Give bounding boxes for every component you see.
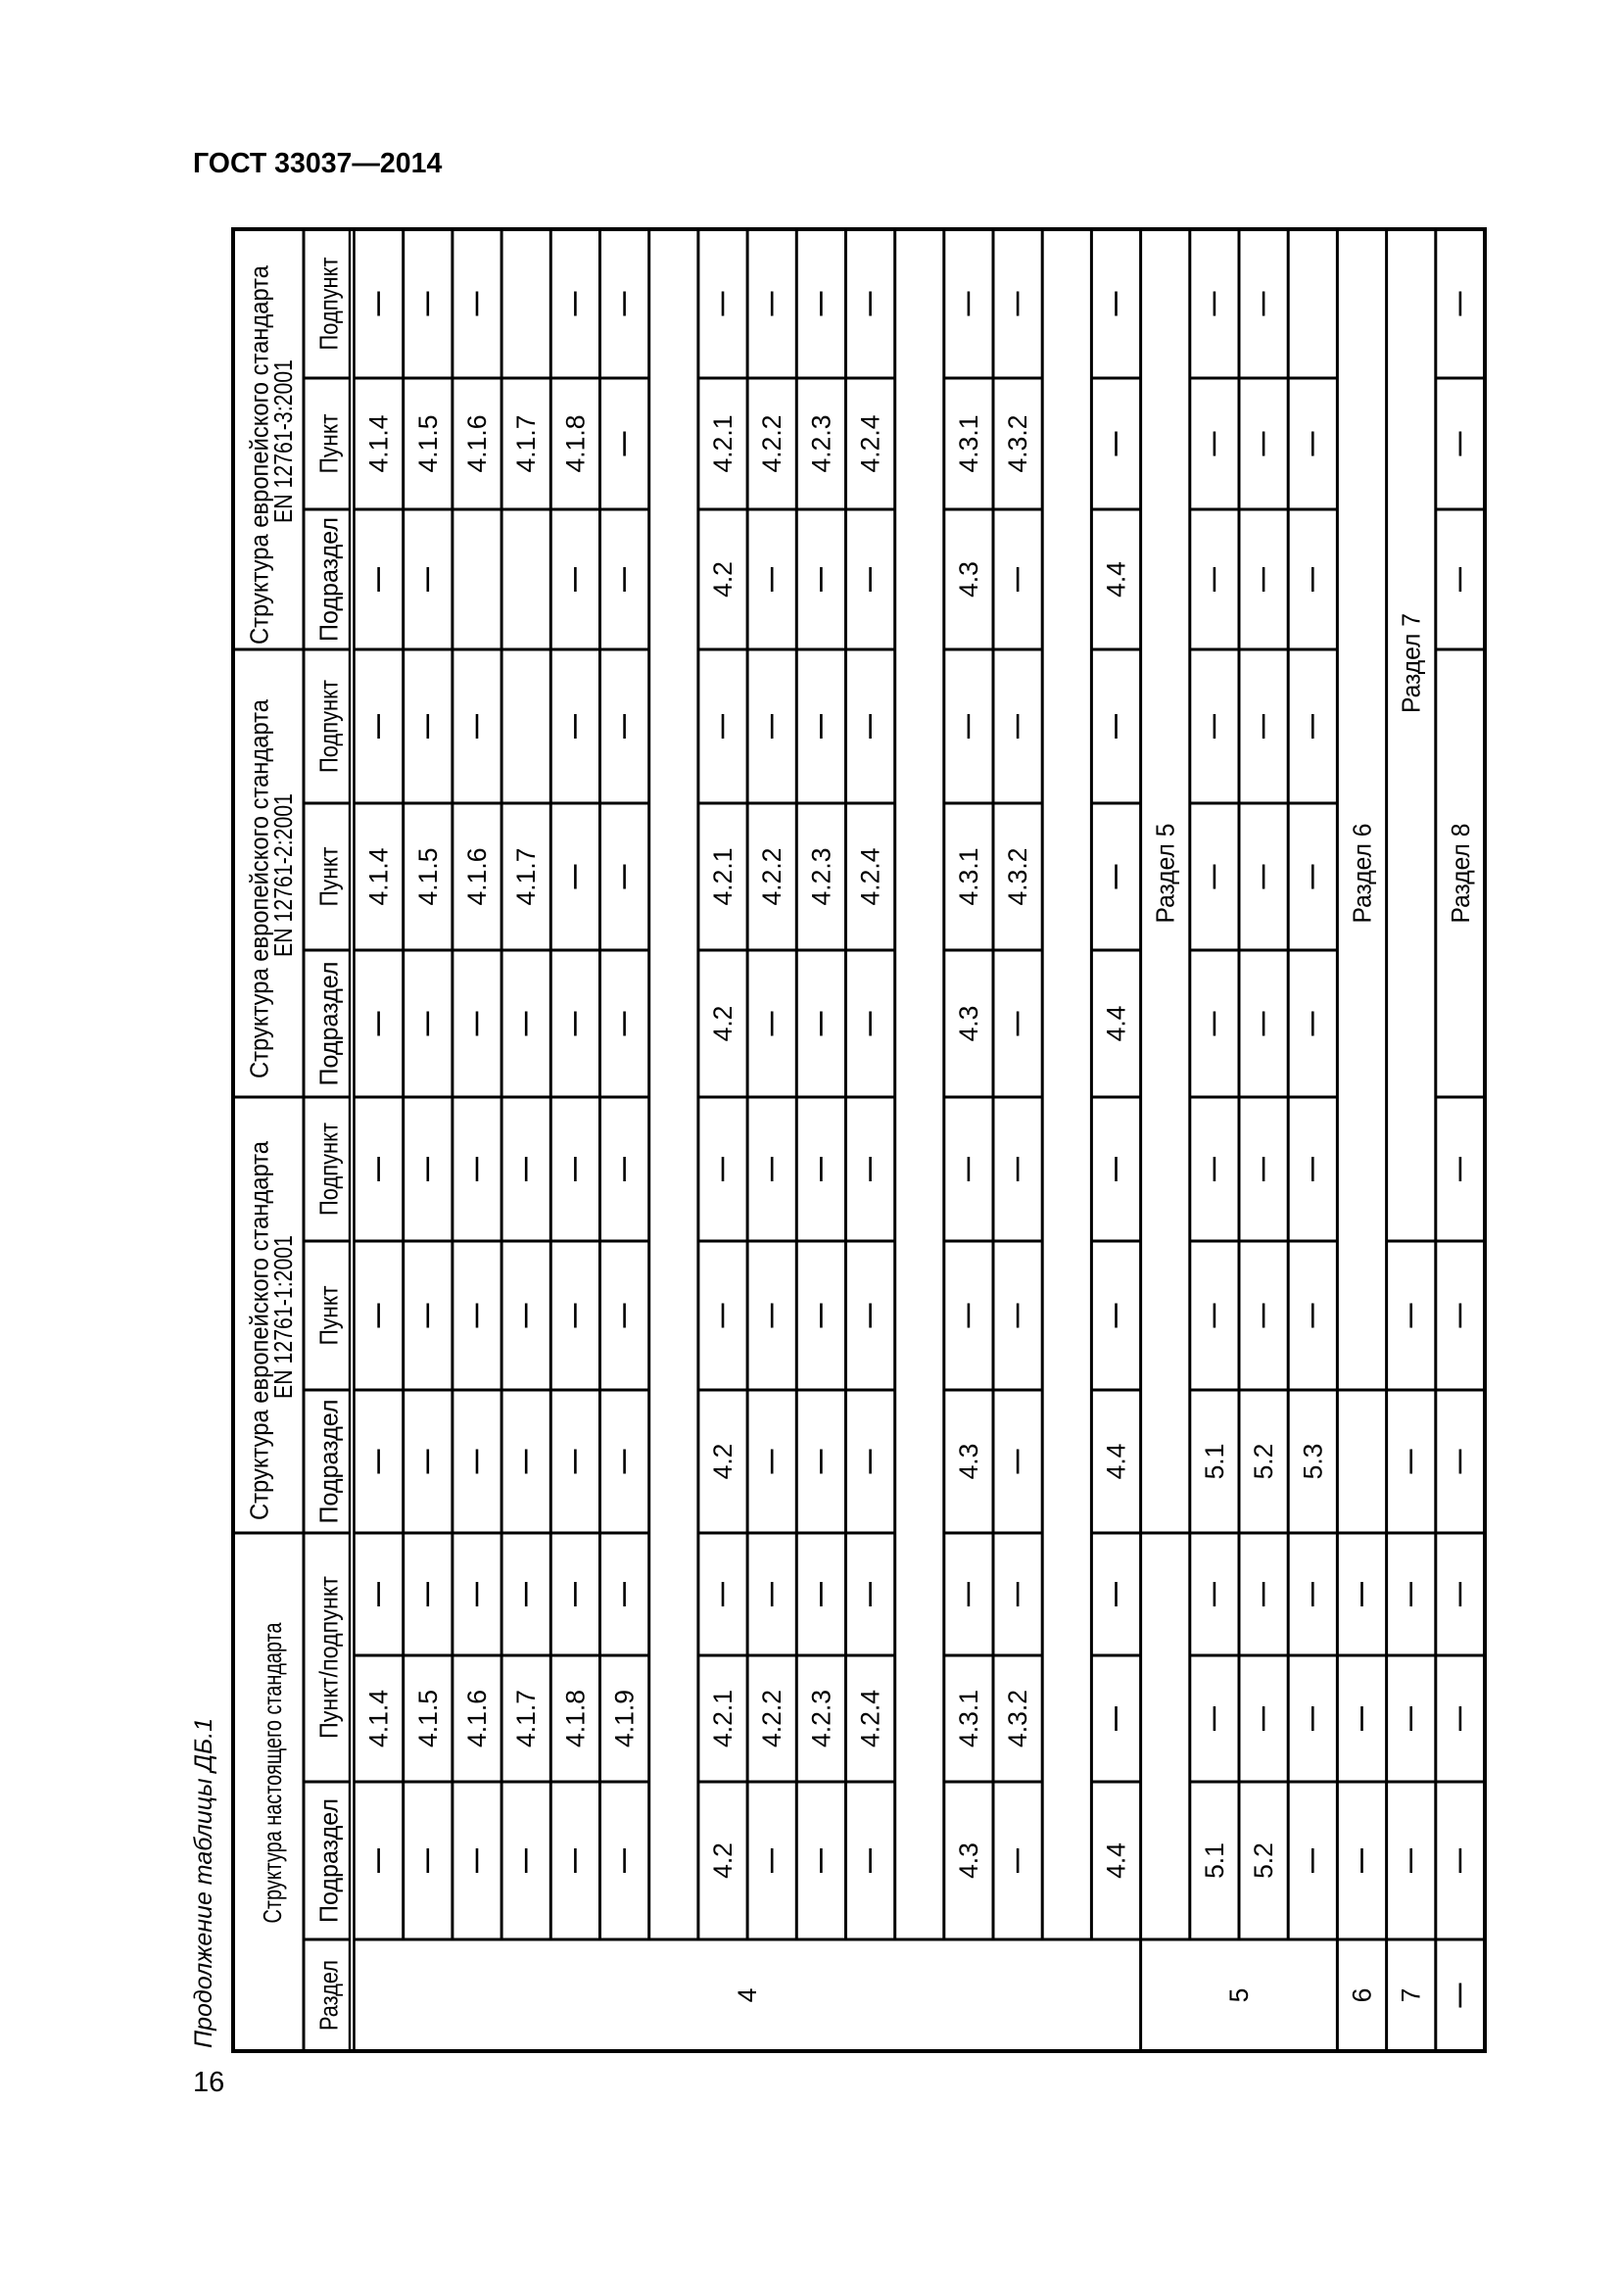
svg-text:4.1.4: 4.1.4: [364, 1690, 394, 1747]
svg-text:4.3: 4.3: [954, 1006, 983, 1042]
svg-text:4.2.1: 4.2.1: [708, 415, 738, 473]
svg-text:4.2.2: 4.2.2: [757, 415, 786, 473]
svg-text:4.3.2: 4.3.2: [1003, 848, 1032, 906]
svg-text:Раздел 5: Раздел 5: [1151, 824, 1180, 924]
svg-text:4.4: 4.4: [1102, 561, 1131, 598]
svg-text:7: 7: [1397, 1988, 1426, 2003]
svg-text:Пункт/подпункт: Пункт/подпункт: [314, 1576, 344, 1739]
svg-text:4.1.6: 4.1.6: [462, 848, 492, 906]
svg-text:4.1.4: 4.1.4: [364, 415, 394, 473]
svg-text:4.1.4: 4.1.4: [364, 848, 394, 906]
svg-text:Структура настоящего стандарта: Структура настоящего стандарта: [258, 1622, 287, 1923]
svg-text:4.3.1: 4.3.1: [954, 415, 983, 473]
svg-text:Раздел 6: Раздел 6: [1348, 824, 1377, 924]
svg-text:Пункт: Пункт: [314, 846, 344, 906]
svg-text:Продолжение таблицы ДБ.1: Продолжение таблицы ДБ.1: [190, 1718, 217, 2048]
svg-text:Подраздел: Подраздел: [314, 517, 344, 642]
svg-text:Раздел: Раздел: [314, 1960, 344, 2031]
svg-text:Подпункт: Подпункт: [314, 680, 344, 773]
svg-text:4.2.4: 4.2.4: [856, 415, 885, 473]
svg-text:Подпункт: Подпункт: [314, 1123, 344, 1216]
svg-text:Подраздел: Подраздел: [314, 1798, 344, 1923]
svg-text:EN 12761-1:2001: EN 12761-1:2001: [268, 1235, 298, 1399]
svg-text:4.2.1: 4.2.1: [708, 1690, 738, 1747]
svg-text:4.3: 4.3: [954, 1444, 983, 1480]
svg-text:Раздел 7: Раздел 7: [1397, 613, 1426, 713]
svg-text:5.3: 5.3: [1298, 1444, 1327, 1480]
svg-text:EN 12761-2:2001: EN 12761-2:2001: [268, 793, 298, 957]
svg-text:4.2.3: 4.2.3: [806, 848, 835, 906]
svg-text:4.1.7: 4.1.7: [511, 848, 541, 906]
svg-text:4.3.1: 4.3.1: [954, 1690, 983, 1747]
svg-text:4.2.4: 4.2.4: [856, 848, 885, 906]
svg-text:4.3.2: 4.3.2: [1003, 1690, 1032, 1747]
svg-text:4.1.8: 4.1.8: [560, 1690, 590, 1747]
svg-text:4: 4: [733, 1988, 762, 2003]
svg-text:4.2.2: 4.2.2: [757, 1690, 786, 1747]
svg-text:4.2: 4.2: [708, 1842, 738, 1879]
svg-text:5.1: 5.1: [1200, 1842, 1229, 1879]
svg-text:4.1.5: 4.1.5: [413, 415, 443, 473]
svg-text:4.1.8: 4.1.8: [560, 415, 590, 473]
svg-text:4.4: 4.4: [1102, 1006, 1131, 1042]
svg-text:4.1.6: 4.1.6: [462, 1690, 492, 1747]
svg-text:16: 16: [193, 2067, 224, 2098]
svg-text:4.1.7: 4.1.7: [511, 1690, 541, 1747]
svg-text:4.3: 4.3: [954, 561, 983, 598]
svg-text:4.1.5: 4.1.5: [413, 1690, 443, 1747]
svg-text:4.3.2: 4.3.2: [1003, 415, 1032, 473]
svg-text:4.2.1: 4.2.1: [708, 848, 738, 906]
svg-text:4.4: 4.4: [1102, 1444, 1131, 1480]
svg-text:4.1.5: 4.1.5: [413, 848, 443, 906]
svg-text:Подраздел: Подраздел: [314, 1400, 344, 1524]
svg-text:Пункт: Пункт: [314, 413, 344, 473]
svg-text:4.2.2: 4.2.2: [757, 848, 786, 906]
svg-text:4.1.9: 4.1.9: [610, 1690, 640, 1747]
svg-text:4.3: 4.3: [954, 1842, 983, 1879]
svg-text:6: 6: [1348, 1988, 1377, 2003]
svg-text:EN 12761-3:2001: EN 12761-3:2001: [268, 359, 298, 523]
svg-text:4.4: 4.4: [1102, 1842, 1131, 1879]
svg-text:4.2.4: 4.2.4: [856, 1690, 885, 1747]
svg-text:5.1: 5.1: [1200, 1444, 1229, 1480]
svg-text:4.1.7: 4.1.7: [511, 415, 541, 473]
svg-text:5.2: 5.2: [1249, 1444, 1278, 1480]
svg-text:4.2: 4.2: [708, 561, 738, 598]
svg-text:Раздел 8: Раздел 8: [1446, 824, 1475, 924]
svg-text:Подраздел: Подраздел: [314, 962, 344, 1086]
svg-text:Подпункт: Подпункт: [314, 257, 344, 350]
svg-text:4.1.6: 4.1.6: [462, 415, 492, 473]
svg-text:4.2: 4.2: [708, 1444, 738, 1480]
svg-text:ГОСТ 33037—2014: ГОСТ 33037—2014: [193, 148, 442, 179]
svg-text:Пункт: Пункт: [314, 1285, 344, 1345]
svg-text:5: 5: [1224, 1988, 1254, 2003]
svg-text:4.2: 4.2: [708, 1006, 738, 1042]
svg-text:4.2.3: 4.2.3: [806, 1690, 835, 1747]
svg-text:5.2: 5.2: [1249, 1842, 1278, 1879]
svg-text:4.3.1: 4.3.1: [954, 848, 983, 906]
svg-text:4.2.3: 4.2.3: [806, 415, 835, 473]
